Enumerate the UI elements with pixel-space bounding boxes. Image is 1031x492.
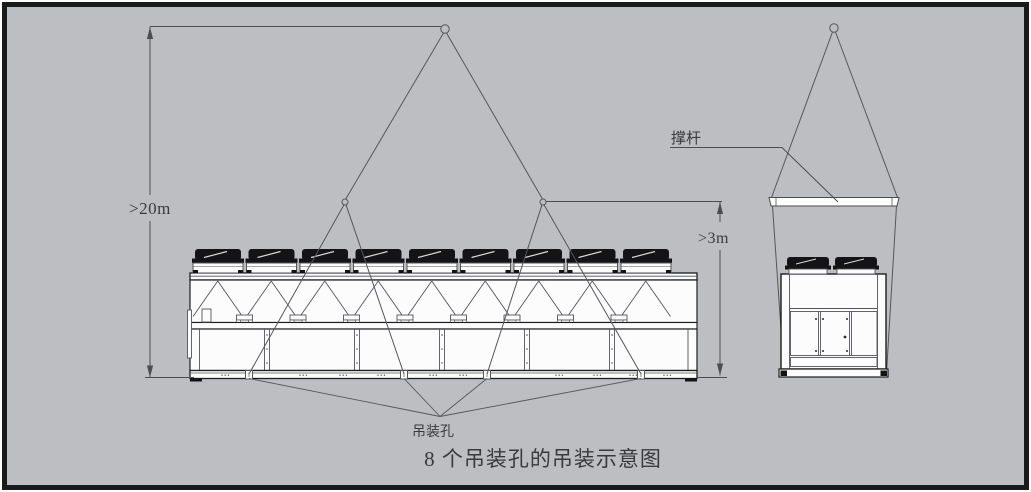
fan-module (192, 249, 244, 273)
base-mark-dot (346, 375, 347, 376)
fan-foot-bracket (237, 315, 253, 320)
fan-lug-left (461, 270, 466, 273)
fan-module (620, 249, 672, 273)
fan-module (833, 257, 879, 274)
rivet-dot (611, 348, 613, 350)
fan-shroud (621, 263, 671, 273)
base-mark-dot (597, 375, 598, 376)
fan-lug-left (568, 270, 573, 273)
fan-module (460, 249, 512, 273)
fan-lug-right (292, 270, 297, 273)
rivet-dot (266, 334, 268, 336)
base-mark-dot (559, 375, 560, 376)
base-mark-dot (433, 375, 434, 376)
end-foot-left (781, 371, 788, 377)
fan-blades-icon (356, 249, 402, 260)
rivet-dot (441, 362, 443, 364)
fan-foot-bracket (397, 315, 413, 320)
fan-shroud (568, 263, 618, 273)
fan-shroud (837, 269, 875, 274)
base-mark-dot (339, 375, 340, 376)
rivet-dot (266, 348, 268, 350)
fan-lug-left (193, 270, 198, 273)
fan-lug-left (247, 270, 252, 273)
base-mark-dot (593, 375, 594, 376)
fan-lug-left (300, 270, 305, 273)
base-mark-dot (562, 375, 563, 376)
fan-blades-icon (195, 249, 241, 260)
dim-label-3m: >3m (698, 230, 729, 247)
lifting-diagram: >20m >3m 吊装孔 8 个吊装孔的吊装示意图 撑杆 (0, 0, 1031, 492)
fan-module (567, 249, 619, 273)
base-mark-dot (436, 375, 437, 376)
front-view-unit (188, 249, 698, 382)
base-mark-dot (343, 375, 344, 376)
mid-rail (190, 323, 697, 330)
fan-blades-icon (516, 249, 562, 260)
rivet-dot (356, 362, 358, 364)
rivet-dot (526, 348, 528, 350)
base-mark-dot (306, 375, 307, 376)
fan-row (192, 249, 672, 273)
base-mark-dot (636, 375, 637, 376)
fan-lug-right (666, 270, 671, 273)
end-foot-right (881, 371, 888, 377)
left-junction-box (202, 309, 211, 322)
base-mark-dot (667, 375, 668, 376)
base-mark-dot (459, 375, 460, 376)
base-mark-dot (466, 375, 467, 376)
base-mark-dot (299, 375, 300, 376)
rivet-dot (356, 334, 358, 336)
unit-foot-right (685, 379, 697, 382)
drawing-frame (5, 5, 1027, 488)
end-unit-body (781, 274, 886, 369)
fan-module (246, 249, 298, 273)
fan-blades-icon (570, 249, 616, 260)
fan-shroud (789, 269, 827, 274)
fan-lug-left (354, 270, 359, 273)
fan-foot-bracket (344, 315, 360, 320)
dim-label-20m: >20m (129, 199, 171, 218)
rivet-dot (441, 348, 443, 350)
rivet-dot (356, 348, 358, 350)
fan-foot-bracket (558, 315, 574, 320)
base-mark-dot (225, 375, 226, 376)
end-base (779, 369, 888, 377)
base-mark-dot (381, 375, 382, 376)
fan-blades-icon (787, 257, 829, 267)
base-mark-dot (600, 375, 601, 376)
base-mark-dot (555, 375, 556, 376)
fan-lug-right (506, 270, 511, 273)
end-view-unit (779, 257, 888, 377)
base-rail (190, 371, 697, 379)
figure-caption: 8 个吊装孔的吊装示意图 (424, 447, 662, 471)
fan-shroud (461, 263, 511, 273)
base-mark-dot (463, 375, 464, 376)
fan-module (299, 249, 351, 273)
fan-lug-right (613, 270, 618, 273)
drawing-sheet: >20m >3m 吊装孔 8 个吊装孔的吊装示意图 撑杆 (0, 0, 1031, 492)
base-mark-dot (303, 375, 304, 376)
fan-lug-left (621, 270, 626, 273)
fan-foot-bracket (451, 315, 467, 320)
fan-lug-right (399, 270, 404, 273)
left-edge-channel (188, 310, 192, 358)
spreader-bar-label: 撑杆 (671, 130, 701, 147)
fan-blades-icon (835, 257, 877, 267)
fan-shroud (247, 263, 297, 273)
fan-shroud (193, 263, 243, 273)
rivet-dot (611, 362, 613, 364)
base-mark-dot (429, 375, 430, 376)
fan-shroud (407, 263, 457, 273)
fan-shroud (354, 263, 404, 273)
fan-foot-bracket (290, 315, 306, 320)
fan-foot-bracket (611, 315, 627, 320)
base-mark-dot (663, 375, 664, 376)
shackle-ring-right-icon (540, 199, 546, 205)
fan-lug-left (514, 270, 519, 273)
fan-blades-icon (409, 249, 455, 260)
fan-lug-left (407, 270, 412, 273)
base-mark-dot (228, 375, 229, 376)
base-mark-dot (629, 375, 630, 376)
fan-lug-right (452, 270, 457, 273)
fan-module (353, 249, 405, 273)
rivet-dot (611, 334, 613, 336)
base-mark-dot (633, 375, 634, 376)
rivet-dot (526, 334, 528, 336)
base-mark-dot (221, 375, 222, 376)
fan-module (406, 249, 458, 273)
fan-shroud (300, 263, 350, 273)
fan-blades-icon (623, 249, 669, 260)
fan-blades-icon (249, 249, 295, 260)
fan-lug-right (238, 270, 243, 273)
fan-module (785, 257, 831, 274)
unit-foot-left (190, 379, 202, 382)
base-mark-dot (377, 375, 378, 376)
fan-blades-icon (302, 249, 348, 260)
base-mark-dot (384, 375, 385, 376)
rivet-dot (266, 362, 268, 364)
fan-lug-right (559, 270, 564, 273)
rivet-dot (441, 334, 443, 336)
lifting-hole-label: 吊装孔 (412, 424, 454, 440)
shackle-ring-left-icon (342, 199, 348, 205)
fan-lug-right (345, 270, 350, 273)
rivet-dot (526, 362, 528, 364)
base-mark-dot (670, 375, 671, 376)
lower-panel-band (190, 329, 697, 371)
fan-blades-icon (463, 249, 509, 260)
